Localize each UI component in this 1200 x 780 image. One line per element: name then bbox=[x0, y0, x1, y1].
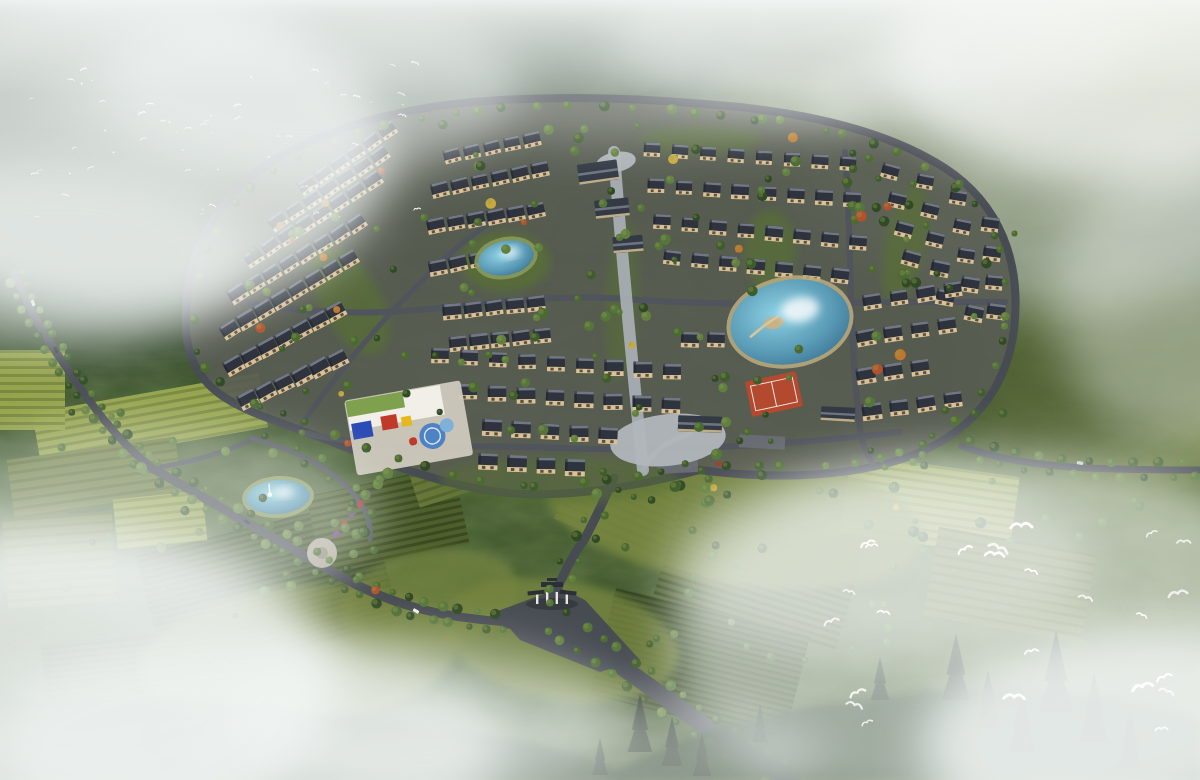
bird bbox=[104, 130, 106, 132]
house bbox=[653, 214, 671, 229]
house bbox=[634, 362, 653, 378]
bird bbox=[81, 82, 83, 84]
house bbox=[957, 247, 976, 264]
house bbox=[484, 299, 503, 316]
house bbox=[661, 397, 680, 414]
house bbox=[910, 359, 930, 377]
house bbox=[889, 399, 909, 417]
house bbox=[821, 232, 840, 248]
house bbox=[709, 220, 727, 236]
house bbox=[985, 275, 1003, 291]
bird bbox=[402, 104, 403, 105]
house bbox=[644, 142, 661, 157]
bird bbox=[306, 185, 308, 187]
house bbox=[469, 332, 490, 350]
house bbox=[775, 262, 794, 278]
house bbox=[663, 364, 681, 380]
house bbox=[960, 276, 980, 294]
aerial-masterplan-view bbox=[0, 0, 1200, 780]
rendering-canvas bbox=[0, 0, 1200, 780]
house bbox=[883, 324, 904, 342]
house bbox=[546, 390, 565, 406]
house bbox=[603, 393, 622, 410]
bird bbox=[182, 149, 184, 151]
house bbox=[518, 354, 536, 369]
house bbox=[731, 184, 749, 200]
house bbox=[488, 386, 506, 402]
bird bbox=[218, 169, 220, 171]
house bbox=[676, 181, 692, 195]
house bbox=[981, 216, 1000, 233]
house bbox=[507, 455, 527, 472]
house bbox=[703, 182, 721, 198]
house bbox=[815, 190, 833, 206]
house bbox=[647, 178, 664, 193]
clubhouse-hall bbox=[821, 406, 856, 422]
house bbox=[830, 267, 849, 284]
house bbox=[916, 394, 937, 413]
house bbox=[517, 388, 536, 404]
house bbox=[691, 253, 709, 269]
house bbox=[547, 356, 565, 372]
bird bbox=[176, 131, 177, 132]
house bbox=[511, 329, 530, 346]
house bbox=[910, 321, 929, 338]
house bbox=[633, 396, 652, 412]
house bbox=[482, 419, 502, 437]
house bbox=[681, 332, 699, 348]
house bbox=[707, 332, 725, 347]
house bbox=[764, 225, 783, 242]
house bbox=[598, 427, 618, 444]
house bbox=[727, 148, 744, 163]
house bbox=[448, 335, 467, 352]
bird bbox=[91, 80, 92, 81]
bird bbox=[370, 101, 371, 102]
blue-block bbox=[351, 420, 373, 439]
bird bbox=[169, 121, 171, 123]
house bbox=[756, 151, 773, 165]
red-block bbox=[380, 414, 398, 431]
house bbox=[882, 362, 904, 381]
house bbox=[463, 301, 483, 318]
house bbox=[937, 317, 957, 335]
bird bbox=[202, 175, 203, 176]
bird bbox=[339, 216, 340, 217]
house bbox=[505, 297, 524, 314]
house bbox=[889, 289, 908, 306]
house bbox=[576, 358, 594, 373]
house bbox=[478, 453, 498, 470]
house bbox=[574, 391, 594, 408]
yellow-block bbox=[401, 415, 413, 427]
house bbox=[700, 147, 716, 161]
house bbox=[442, 303, 462, 320]
bird bbox=[268, 156, 270, 158]
house bbox=[565, 459, 585, 477]
house bbox=[943, 391, 963, 408]
house bbox=[943, 281, 962, 298]
house bbox=[915, 284, 936, 303]
house bbox=[737, 223, 754, 238]
bird bbox=[202, 209, 203, 210]
bird bbox=[210, 115, 211, 116]
house bbox=[811, 154, 828, 169]
bird bbox=[318, 212, 319, 213]
fog-bank bbox=[670, 470, 1090, 660]
house bbox=[793, 229, 811, 245]
bird bbox=[69, 172, 71, 174]
bird bbox=[250, 76, 252, 78]
house bbox=[537, 458, 556, 474]
house bbox=[916, 173, 935, 190]
house bbox=[787, 188, 805, 203]
parking-lot bbox=[739, 434, 786, 449]
house bbox=[849, 235, 867, 251]
house bbox=[862, 293, 882, 311]
car bbox=[716, 462, 723, 466]
bird bbox=[113, 151, 115, 153]
bird bbox=[211, 132, 212, 133]
clubhouse-hall bbox=[594, 197, 630, 218]
